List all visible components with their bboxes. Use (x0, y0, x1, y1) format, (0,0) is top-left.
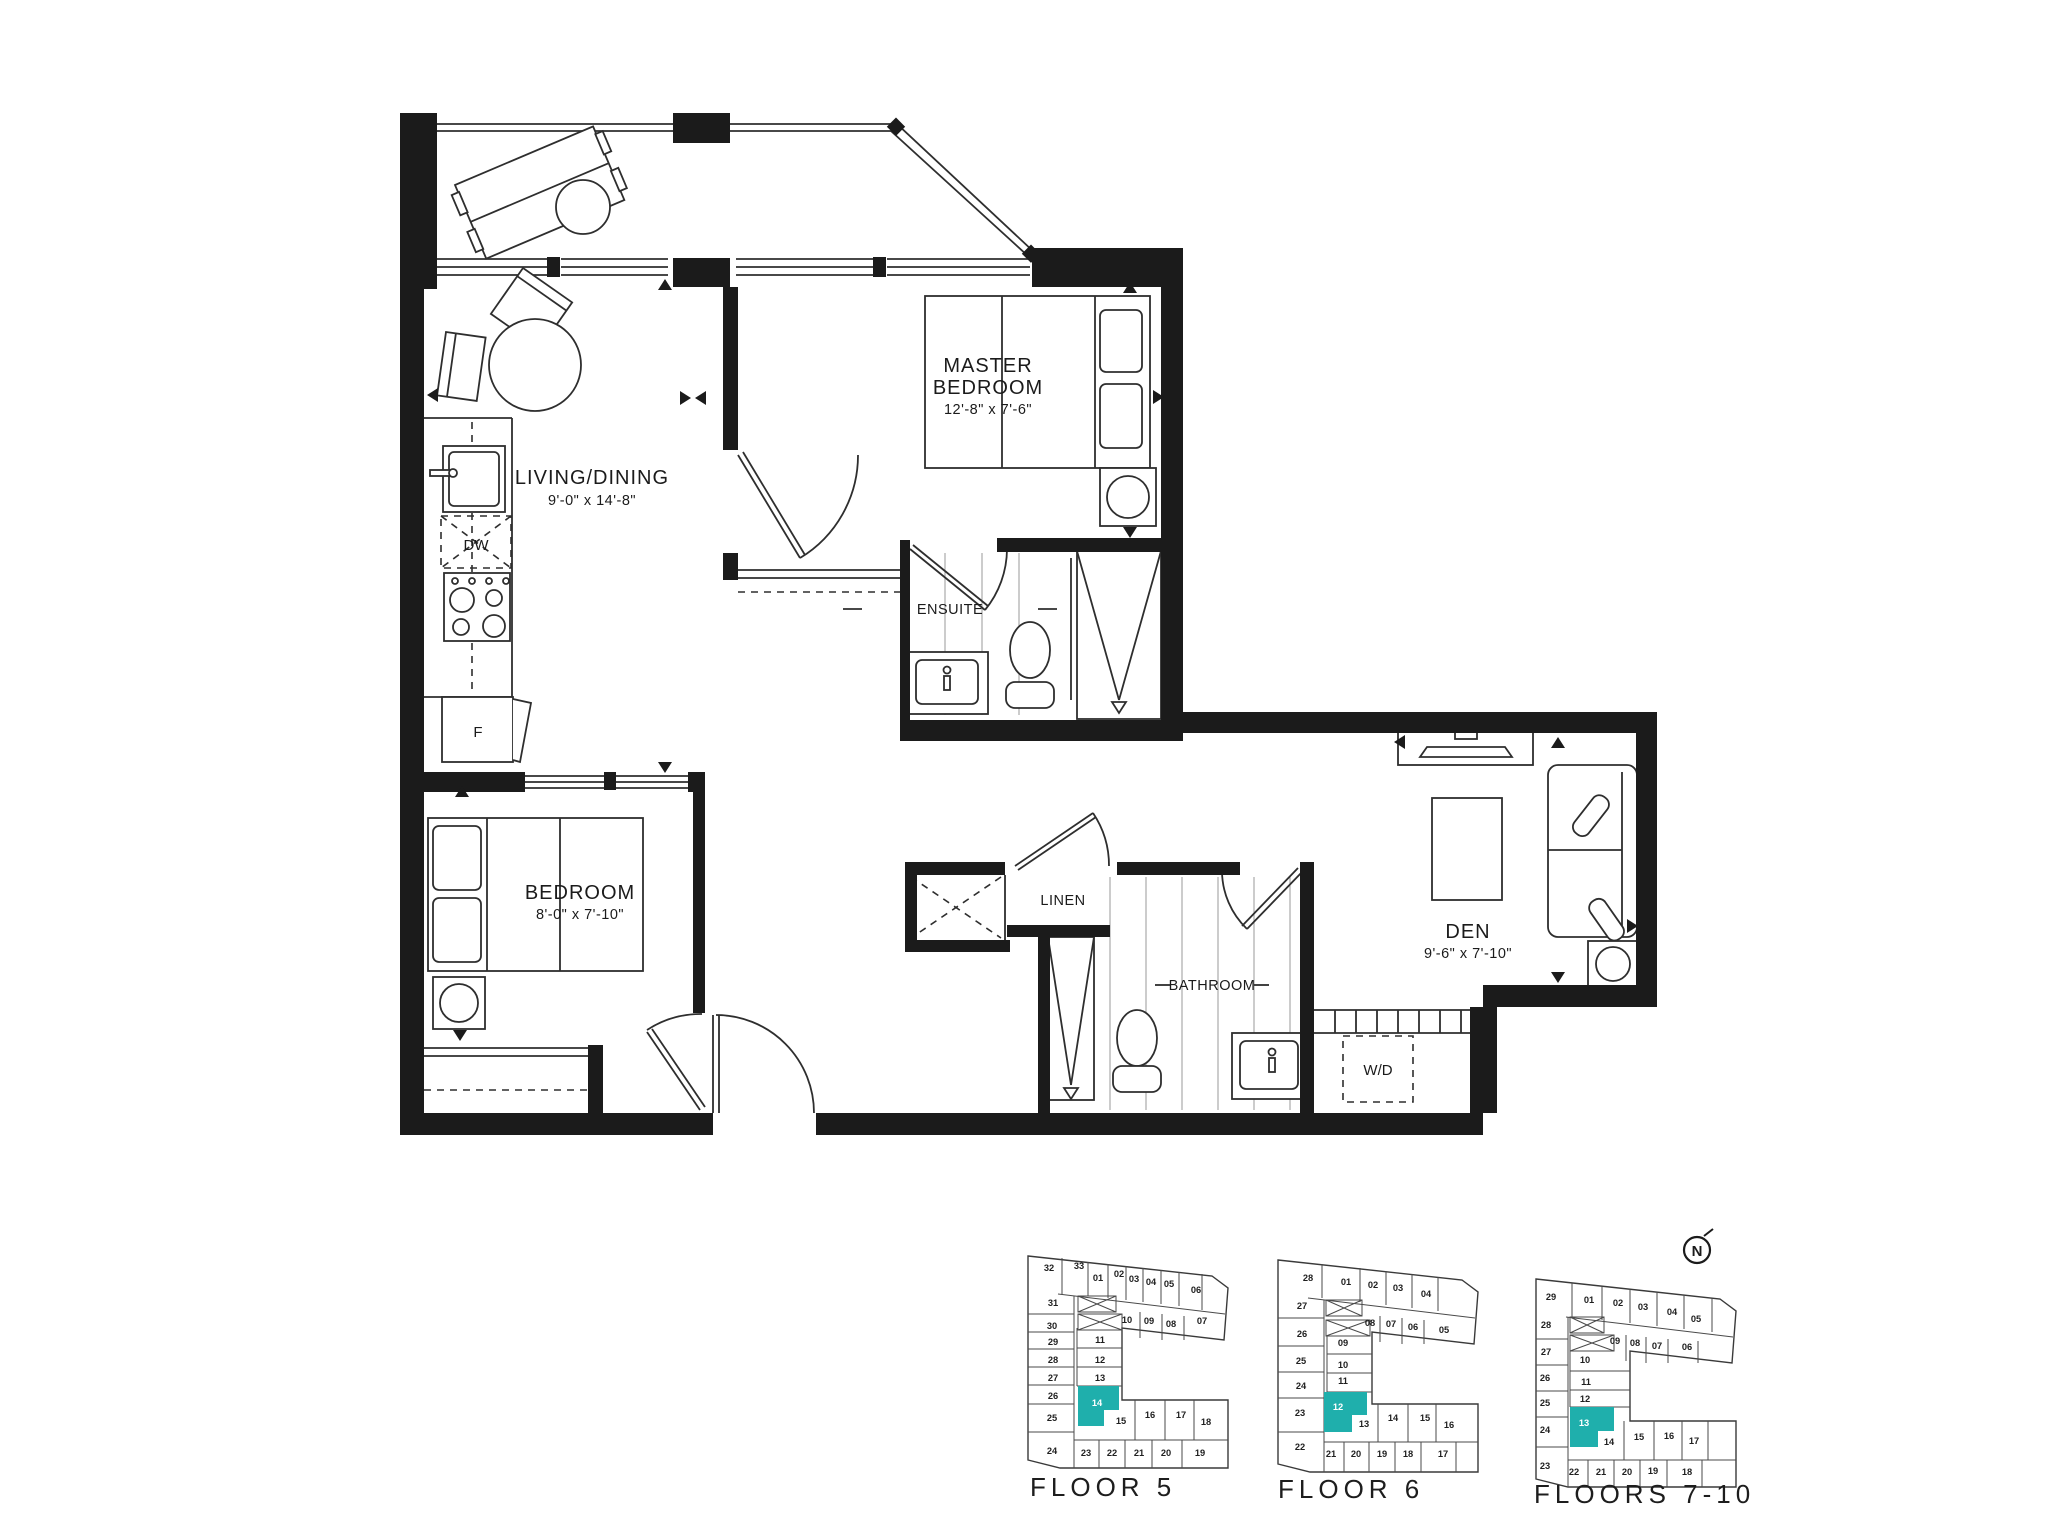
label-den: DEN (1445, 921, 1490, 943)
unit-label: 02 (1368, 1280, 1378, 1290)
unit-label: 01 (1093, 1273, 1103, 1283)
floorplan-page: LIVING/DINING 9'-0" x 14'-8" MASTER BEDR… (0, 0, 2048, 1526)
unit-label: 19 (1377, 1449, 1387, 1459)
unit-label: 01 (1584, 1295, 1594, 1305)
bathroom-shower (1048, 937, 1094, 1100)
unit-label: 03 (1129, 1274, 1139, 1284)
unit-label: 24 (1296, 1381, 1307, 1391)
unit-label: 25 (1296, 1356, 1306, 1366)
unit-label: 33 (1074, 1261, 1084, 1271)
unit-label: 13 (1359, 1419, 1369, 1429)
label-master-bedroom-dims: 12'-8" x 7'-6" (944, 402, 1032, 418)
dining-table (489, 319, 581, 411)
unit-label: 20 (1622, 1467, 1632, 1477)
unit-label: 18 (1201, 1417, 1211, 1427)
unit-label: 07 (1386, 1319, 1396, 1329)
label-living-dining: LIVING/DINING (515, 467, 669, 489)
unit-label: 18 (1682, 1467, 1692, 1477)
unit-label: 11 (1581, 1377, 1591, 1387)
unit-label: 04 (1146, 1277, 1157, 1287)
unit-label: 16 (1145, 1410, 1155, 1420)
keyplan-floor-5: 32 33 01 02 03 04 05 06 31 30 10 09 08 0… (1028, 1256, 1228, 1502)
unit-label: 08 (1630, 1338, 1640, 1348)
unit-label: 22 (1569, 1467, 1579, 1477)
unit-label-highlighted: 14 (1092, 1398, 1103, 1408)
label-linen: LINEN (1040, 893, 1085, 909)
unit-label-highlighted: 13 (1579, 1418, 1589, 1428)
unit-label: 10 (1338, 1360, 1348, 1370)
unit-label: 28 (1303, 1273, 1313, 1283)
label-master-bedroom: MASTER (943, 355, 1032, 377)
unit-label: 24 (1047, 1446, 1058, 1456)
unit-label: 06 (1408, 1322, 1418, 1332)
unit-label: 29 (1546, 1292, 1556, 1302)
unit-label: 21 (1326, 1449, 1336, 1459)
unit-label: 31 (1048, 1298, 1058, 1308)
unit-label: 07 (1197, 1316, 1207, 1326)
unit-label: 15 (1116, 1416, 1126, 1426)
unit-label: 06 (1682, 1342, 1692, 1352)
floor-plan: LIVING/DINING 9'-0" x 14'-8" MASTER BEDR… (0, 0, 2048, 1526)
keyplan-caption: FLOORS 7-10 (1534, 1479, 1755, 1509)
unit-label: 11 (1095, 1335, 1105, 1345)
dashed-lines (424, 422, 1413, 1102)
keyplan-floor-6: 28 01 02 03 04 27 08 07 06 05 26 09 25 1… (1278, 1260, 1478, 1504)
unit-label: 29 (1048, 1337, 1058, 1347)
unit-label: 09 (1610, 1336, 1620, 1346)
unit-label: 19 (1195, 1448, 1205, 1458)
ensuite-shower (1077, 551, 1161, 719)
unit-label: 25 (1047, 1413, 1057, 1423)
unit-label: 30 (1047, 1321, 1057, 1331)
keyplan-floors-7-10: 29 01 02 03 04 05 28 09 08 07 06 27 10 2… (1534, 1279, 1755, 1509)
unit-label: 28 (1048, 1355, 1058, 1365)
label-ensuite: ENSUITE (917, 602, 983, 618)
unit-label: 26 (1297, 1329, 1307, 1339)
label-bathroom: BATHROOM (1169, 978, 1256, 994)
unit-label: 22 (1107, 1448, 1117, 1458)
unit-label: 32 (1044, 1263, 1054, 1273)
unit-label: 13 (1095, 1373, 1105, 1383)
unit-label: 05 (1439, 1325, 1449, 1335)
bathroom-toilet (1117, 1010, 1157, 1066)
label-living-dining-dims: 9'-0" x 14'-8" (548, 493, 636, 509)
unit-label: 04 (1421, 1289, 1432, 1299)
unit-label: 11 (1338, 1376, 1348, 1386)
unit-label: 05 (1164, 1279, 1174, 1289)
unit-label: 16 (1444, 1420, 1454, 1430)
unit-label: 14 (1604, 1437, 1615, 1447)
unit-label: 20 (1161, 1448, 1171, 1458)
unit-label: 23 (1295, 1408, 1305, 1418)
unit-label: 25 (1540, 1398, 1550, 1408)
label-bedroom: BEDROOM (525, 882, 635, 904)
unit-label: 05 (1691, 1314, 1701, 1324)
unit-label: 18 (1403, 1449, 1413, 1459)
unit-label: 28 (1541, 1320, 1551, 1330)
keyplan-caption: FLOOR 5 (1030, 1472, 1176, 1502)
unit-label-highlighted: 12 (1333, 1402, 1343, 1412)
unit-label: 02 (1114, 1269, 1124, 1279)
unit-label: 26 (1048, 1391, 1058, 1401)
unit-label: 06 (1191, 1285, 1201, 1295)
unit-label: 07 (1652, 1341, 1662, 1351)
unit-label: 21 (1596, 1467, 1606, 1477)
balcony-table (556, 180, 610, 234)
unit-label: 09 (1144, 1316, 1154, 1326)
unit-label: 20 (1351, 1449, 1361, 1459)
doors (647, 452, 1303, 1113)
unit-label: 17 (1438, 1449, 1448, 1459)
unit-label: 16 (1664, 1431, 1674, 1441)
unit-label: 02 (1613, 1298, 1623, 1308)
unit-label: 19 (1648, 1466, 1658, 1476)
label-dishwasher: DW (464, 537, 490, 554)
label-washer-dryer: W/D (1363, 1062, 1392, 1079)
svg-text:N: N (1692, 1243, 1703, 1260)
unit-label: 27 (1048, 1373, 1058, 1383)
unit-label: 23 (1540, 1461, 1550, 1471)
unit-label: 17 (1689, 1436, 1699, 1446)
unit-label: 15 (1634, 1432, 1644, 1442)
label-bedroom-dims: 8'-0" x 7'-10" (536, 907, 624, 923)
unit-label: 23 (1081, 1448, 1091, 1458)
keyplan-caption: FLOOR 6 (1278, 1474, 1424, 1504)
unit-label: 12 (1580, 1394, 1590, 1404)
unit-label: 27 (1297, 1301, 1307, 1311)
unit-label: 24 (1540, 1425, 1551, 1435)
unit-label: 03 (1638, 1302, 1648, 1312)
unit-label: 12 (1095, 1355, 1105, 1365)
unit-label: 15 (1420, 1413, 1430, 1423)
label-fridge: F (473, 724, 482, 741)
unit-label: 17 (1176, 1410, 1186, 1420)
unit-label: 21 (1134, 1448, 1144, 1458)
unit-label: 01 (1341, 1277, 1351, 1287)
unit-label: 09 (1338, 1338, 1348, 1348)
ensuite-toilet (1010, 622, 1050, 678)
label-master-bedroom: BEDROOM (933, 377, 1043, 399)
unit-label: 08 (1166, 1319, 1176, 1329)
unit-label: 10 (1122, 1315, 1132, 1325)
unit-label: 08 (1365, 1318, 1375, 1328)
north-indicator-icon: N (1684, 1229, 1713, 1263)
unit-label: 04 (1667, 1307, 1678, 1317)
unit-label: 27 (1541, 1347, 1551, 1357)
dining-chair (437, 332, 486, 401)
den-table (1432, 798, 1502, 900)
unit-label: 26 (1540, 1373, 1550, 1383)
unit-label: 22 (1295, 1442, 1305, 1452)
unit-label: 10 (1580, 1355, 1590, 1365)
unit-label: 03 (1393, 1283, 1403, 1293)
unit-label: 14 (1388, 1413, 1399, 1423)
label-den-dims: 9'-6" x 7'-10" (1424, 946, 1512, 962)
